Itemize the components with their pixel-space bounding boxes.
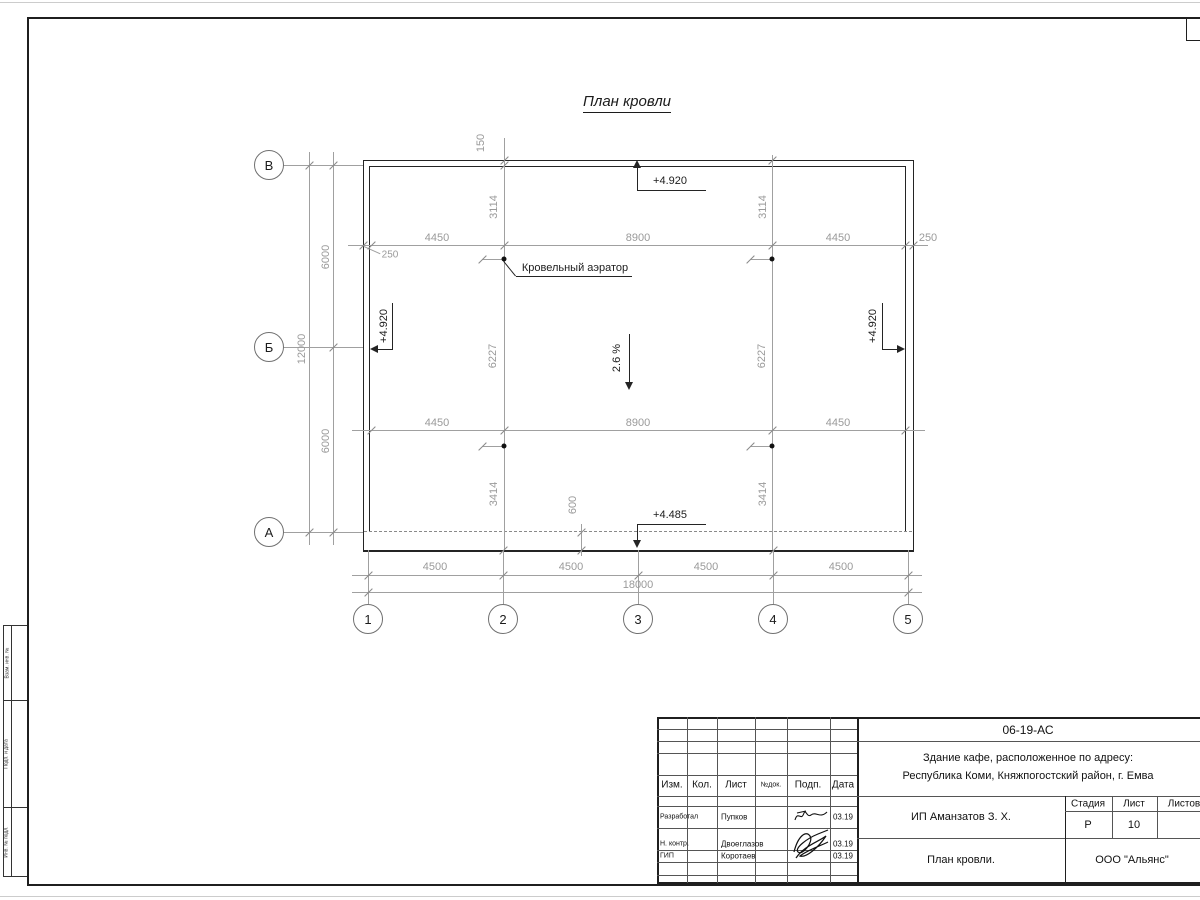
- tb-line: [1065, 796, 1066, 883]
- parapet-inner-right: [905, 166, 906, 532]
- wall-line-axis-a: [364, 531, 912, 532]
- elevation-left: +4.920: [378, 309, 390, 343]
- aerator-leader-underline: [516, 276, 632, 277]
- tb-stage-value: Р: [1084, 819, 1091, 831]
- side-label-1: Взам. инв. №: [4, 647, 10, 678]
- dim-line: [352, 592, 922, 593]
- tb-role: ГИП: [660, 853, 674, 860]
- tb-line: [657, 862, 857, 863]
- tb-name: Двоеглазов: [721, 840, 764, 849]
- dim-label: 4450: [826, 232, 850, 244]
- tb-stage-col: Стадия: [1071, 799, 1105, 810]
- slope-arrow-head: [625, 382, 633, 390]
- dim-label: 6227: [487, 344, 499, 368]
- dim-label: 4500: [829, 561, 853, 573]
- dim-line: [348, 245, 928, 246]
- dim-line: [482, 446, 502, 447]
- tb-line: [657, 717, 1200, 719]
- axis-label: Б: [265, 340, 274, 355]
- dim-line: [750, 446, 770, 447]
- roof-outline: [363, 160, 914, 552]
- dim-label: 250: [382, 250, 399, 261]
- tb-rev-col: Кол.: [692, 780, 712, 791]
- dim-line: [283, 532, 363, 533]
- tb-role: Н. контр.: [660, 841, 689, 848]
- signature-icon: [788, 826, 832, 862]
- dim-line: [750, 259, 770, 260]
- corner-stamp-bottom: [1186, 40, 1200, 41]
- dim-label: 250: [919, 232, 937, 244]
- elevation-left-line: [392, 303, 393, 349]
- elevation-connector-top: [637, 168, 638, 190]
- tb-rev-col: Изм.: [661, 780, 682, 791]
- dim-label-overhang-bottom: 600: [567, 496, 579, 514]
- axis-label: А: [265, 525, 274, 540]
- axis-label: 5: [904, 612, 911, 627]
- dim-line: [283, 165, 363, 166]
- dim-label: 4450: [826, 417, 850, 429]
- side-label-cell-1: Взам. инв. №: [2, 625, 12, 700]
- tb-project-line1: Здание кафе, расположенное по адресу:: [923, 752, 1133, 764]
- dim-label: 4450: [425, 417, 449, 429]
- tb-date: 03.19: [833, 840, 853, 849]
- dim-line: [352, 430, 925, 431]
- tb-stage-col: Листов: [1168, 799, 1200, 810]
- tb-project-line2: Республика Коми, Княжпогостский район, г…: [902, 770, 1153, 782]
- axis-bubble-v: В: [254, 150, 284, 180]
- elevation-arrow-left: [370, 345, 378, 353]
- axis-label: 2: [499, 612, 506, 627]
- frame-left: [27, 17, 29, 885]
- tb-rev-col: №док.: [761, 782, 782, 789]
- dim-line: [638, 550, 639, 604]
- tb-line: [657, 882, 1200, 884]
- tb-date: 03.19: [833, 813, 853, 822]
- tb-sheet-name: План кровли.: [927, 854, 995, 866]
- dim-label: 4450: [425, 232, 449, 244]
- tb-line: [1065, 811, 1200, 812]
- axis-bubble-3: 3: [623, 604, 653, 634]
- tb-line: [657, 753, 857, 754]
- tb-sheet-value: 10: [1128, 819, 1140, 831]
- tb-doc-number: 06-19-АС: [1002, 723, 1053, 737]
- dim-label: 6000: [320, 429, 332, 453]
- dim-line: [503, 550, 504, 604]
- tb-line: [657, 741, 1200, 742]
- elevation-arrow-bottom: [633, 540, 641, 548]
- elevation-arrow-right: [897, 345, 905, 353]
- dim-label: 3114: [757, 195, 769, 219]
- tb-rev-col: Лист: [725, 780, 747, 791]
- tb-date: 03.19: [833, 852, 853, 861]
- side-label-cell-2: Подп. и дата: [2, 700, 12, 807]
- dim-label: 4500: [423, 561, 447, 573]
- paper-edge-top: [0, 2, 1200, 3]
- dim-line: [482, 259, 502, 260]
- axis-label: 4: [769, 612, 776, 627]
- tb-name: Коротаев: [721, 852, 756, 861]
- elevation-shelf-top: [637, 190, 706, 191]
- frame-bottom: [27, 884, 1200, 886]
- elevation-right-line: [882, 303, 883, 349]
- tb-line: [857, 838, 1200, 839]
- tb-stage-col: Лист: [1123, 799, 1145, 810]
- dim-label-total-width: 18000: [623, 579, 654, 591]
- dim-label: 8900: [626, 417, 650, 429]
- dim-label-overhang-top: 150: [475, 134, 487, 152]
- tb-rev-col: Подп.: [795, 780, 822, 791]
- tb-line: [1157, 796, 1158, 838]
- dim-line: [368, 550, 369, 604]
- elevation-eaves: +4.485: [653, 509, 687, 521]
- slope-arrow-line: [629, 334, 630, 386]
- dim-line: [773, 550, 774, 604]
- elevation-connector-bottom: [637, 524, 638, 541]
- roof-aerator-dot: [770, 257, 775, 262]
- corner-stamp-left: [1186, 17, 1187, 41]
- roof-aerator-dot: [502, 444, 507, 449]
- dim-line: [772, 155, 773, 550]
- page-title: План кровли: [583, 93, 671, 113]
- dim-line: [309, 152, 310, 545]
- dim-label: 4500: [694, 561, 718, 573]
- axis-label: 3: [634, 612, 641, 627]
- dim-label: 3414: [757, 482, 769, 506]
- elevation-right: +4.920: [867, 309, 879, 343]
- signature-icon: [792, 806, 830, 826]
- tb-name: Пупков: [721, 813, 747, 822]
- dim-line: [283, 347, 363, 348]
- drawing-sheet: Взам. инв. № Подп. и дата Инв. № подл. П…: [0, 0, 1200, 900]
- tb-line: [657, 729, 857, 730]
- axis-bubble-1: 1: [353, 604, 383, 634]
- tb-role: Разработал: [660, 814, 698, 821]
- axis-bubble-2: 2: [488, 604, 518, 634]
- tb-company: ООО "Альянс": [1095, 854, 1169, 866]
- dim-label: 3414: [488, 482, 500, 506]
- axis-bubble-b: Б: [254, 332, 284, 362]
- axis-bubble-a: А: [254, 517, 284, 547]
- tb-line: [1112, 796, 1113, 838]
- dim-label: 4500: [559, 561, 583, 573]
- dim-line: [504, 138, 505, 550]
- paper-edge-bottom: [0, 896, 1200, 897]
- tb-line: [657, 875, 857, 876]
- dim-label: 8900: [626, 232, 650, 244]
- tb-line: [657, 775, 857, 776]
- side-label-cell-3: Инв. № подл.: [2, 807, 12, 876]
- slope-label: 2.6 %: [611, 344, 623, 372]
- elevation-top: +4.920: [653, 175, 687, 187]
- side-label-2: Подп. и дата: [4, 739, 10, 768]
- dim-label: 6000: [320, 245, 332, 269]
- axis-label: 1: [364, 612, 371, 627]
- tb-line: [657, 796, 1200, 797]
- axis-bubble-4: 4: [758, 604, 788, 634]
- elevation-arrow-top: [633, 160, 641, 168]
- aerator-label: Кровельный аэратор: [522, 262, 628, 274]
- elevation-shelf-bottom: [637, 524, 706, 525]
- roof-aerator-dot: [770, 444, 775, 449]
- tb-client: ИП Аманзатов З. Х.: [911, 811, 1011, 823]
- side-column-divider-4: [3, 876, 27, 877]
- dim-label: 6227: [756, 344, 768, 368]
- dim-label: 3114: [488, 195, 500, 219]
- frame-top: [27, 17, 1200, 19]
- dim-line: [908, 550, 909, 604]
- tb-rev-col: Дата: [832, 780, 854, 791]
- axis-label: В: [265, 158, 274, 173]
- dim-label-total-height: 12000: [296, 334, 308, 365]
- side-label-3: Инв. № подл.: [4, 826, 10, 857]
- axis-bubble-5: 5: [893, 604, 923, 634]
